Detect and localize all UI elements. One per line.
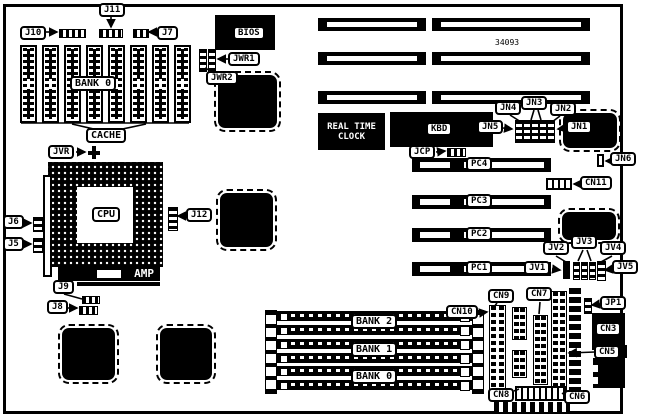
cn8-cn6-connector: [515, 386, 567, 401]
label-j11: J11: [99, 3, 125, 17]
cache-chip: [42, 45, 59, 123]
label-j10: J10: [20, 26, 46, 40]
jn-jumper-pins: [531, 120, 539, 143]
label-cn8: CN8: [488, 388, 514, 402]
j10-jumper-pins: [59, 29, 86, 38]
label-jv1: JV1: [524, 261, 550, 275]
rtc-label-line1: REAL TIME: [318, 122, 385, 132]
jp1-pins: [584, 298, 592, 314]
pin-header: [512, 350, 527, 378]
amp-label: AMP: [134, 267, 154, 280]
label-j5: J5: [3, 237, 24, 251]
jv-jumper-pins: [597, 261, 606, 281]
jn-jumper-pins: [547, 120, 555, 143]
power-connector: [593, 358, 625, 388]
label-bios: BIOS: [233, 26, 265, 40]
amp-slot-notch: [97, 270, 121, 278]
pin-strip: [569, 288, 581, 390]
cn11-header: [546, 178, 572, 190]
label-j8: J8: [47, 300, 68, 314]
label-j7: J7: [157, 26, 178, 40]
label-jn6: JN6: [610, 152, 636, 166]
cache-chip: [152, 45, 169, 123]
label-cpu: CPU: [92, 207, 120, 222]
cache-chip: [130, 45, 147, 123]
label-jn3: JN3: [521, 96, 547, 110]
label-cn5: CN5: [594, 345, 620, 359]
label-pc1: PC1: [466, 261, 492, 275]
j5-pins: [33, 238, 43, 253]
label-cn3: CN3: [595, 322, 621, 336]
label-cache: CACHE: [86, 128, 126, 143]
j7-jumper-pins: [133, 29, 149, 38]
label-j9: J9: [53, 280, 74, 294]
jv-jumper-pin: [563, 261, 570, 279]
label-jvr: JVR: [48, 145, 74, 159]
cache-chip: [20, 45, 37, 123]
label-kbd: KBD: [426, 122, 452, 136]
motherboard-diagram: 34093 REAL TIME CLOCK AMP: [0, 0, 645, 419]
jn-jumper-pins: [515, 120, 523, 143]
label-jv3: JV3: [571, 235, 597, 249]
jvr-jumper: [88, 146, 100, 159]
label-jcp: JCP: [409, 145, 435, 159]
label-jn5: JN5: [477, 120, 503, 134]
label-pc4: PC4: [466, 157, 492, 171]
pin-header: [551, 291, 567, 392]
connector-teeth: [494, 402, 570, 412]
cpu-socket-lever: [43, 175, 52, 277]
simm-left-pads: [265, 310, 277, 394]
amp-connector: AMP: [58, 267, 160, 281]
real-time-clock-chip: REAL TIME CLOCK: [318, 113, 385, 150]
label-cn7: CN7: [526, 287, 552, 301]
jv-jumper-pins: [589, 262, 596, 280]
label-bank2: BANK 2: [351, 314, 397, 329]
label-bank1: BANK 1: [351, 342, 397, 357]
label-j12: J12: [186, 208, 212, 222]
pin-header: [512, 307, 527, 340]
j12-pins: [168, 207, 178, 231]
label-jv2: JV2: [543, 241, 569, 255]
cn10-header: [489, 305, 506, 393]
isa-slot: [318, 52, 426, 65]
label-jv4: JV4: [600, 241, 626, 255]
jcp-pads: [447, 148, 466, 157]
label-cn11: CN11: [580, 176, 612, 190]
label-bank0: BANK 0: [351, 369, 397, 384]
label-cn6: CN6: [564, 390, 590, 404]
label-cn9: CN9: [488, 289, 514, 303]
qfp-chip: [160, 328, 212, 380]
qfp-chip: [62, 328, 115, 380]
j9-pads: [82, 296, 100, 304]
jn-jumper-pins: [523, 120, 531, 143]
j8-pads: [79, 306, 98, 315]
jwr1-pins: [199, 49, 207, 72]
label-jn2: JN2: [550, 102, 576, 116]
isa-slot: [318, 91, 426, 104]
jv-jumper-pins: [573, 262, 580, 280]
isa-slot: [318, 18, 426, 31]
label-jwr2: JWR2: [206, 71, 238, 85]
label-cn10: CN10: [446, 305, 478, 319]
board-part-number: 34093: [495, 38, 519, 47]
isa-slot: [432, 52, 590, 65]
label-jwr1: JWR1: [228, 52, 260, 66]
j6-pins: [33, 217, 43, 232]
rtc-label-line2: CLOCK: [318, 132, 385, 142]
label-pc2: PC2: [466, 227, 492, 241]
label-j6: J6: [3, 215, 24, 229]
label-pc3: PC3: [466, 194, 492, 208]
label-jp1: JP1: [600, 296, 626, 310]
label-jn4: JN4: [495, 101, 521, 115]
jv-jumper-pins: [581, 262, 588, 280]
j11-jumper-pins: [99, 29, 123, 38]
simm-right-pads: [472, 310, 484, 394]
jn-jumper-pins: [539, 120, 547, 143]
socket-lower-edge: [77, 282, 160, 286]
label-cache-bank0: BANK 0: [70, 76, 116, 91]
qfp-chip: [220, 193, 273, 247]
isa-slot: [432, 18, 590, 31]
label-jn1: JN1: [566, 120, 592, 134]
label-jv5: JV5: [612, 260, 638, 274]
cn7-connector: [533, 315, 548, 385]
cache-chip: [174, 45, 191, 123]
jn6-pin: [597, 154, 604, 167]
